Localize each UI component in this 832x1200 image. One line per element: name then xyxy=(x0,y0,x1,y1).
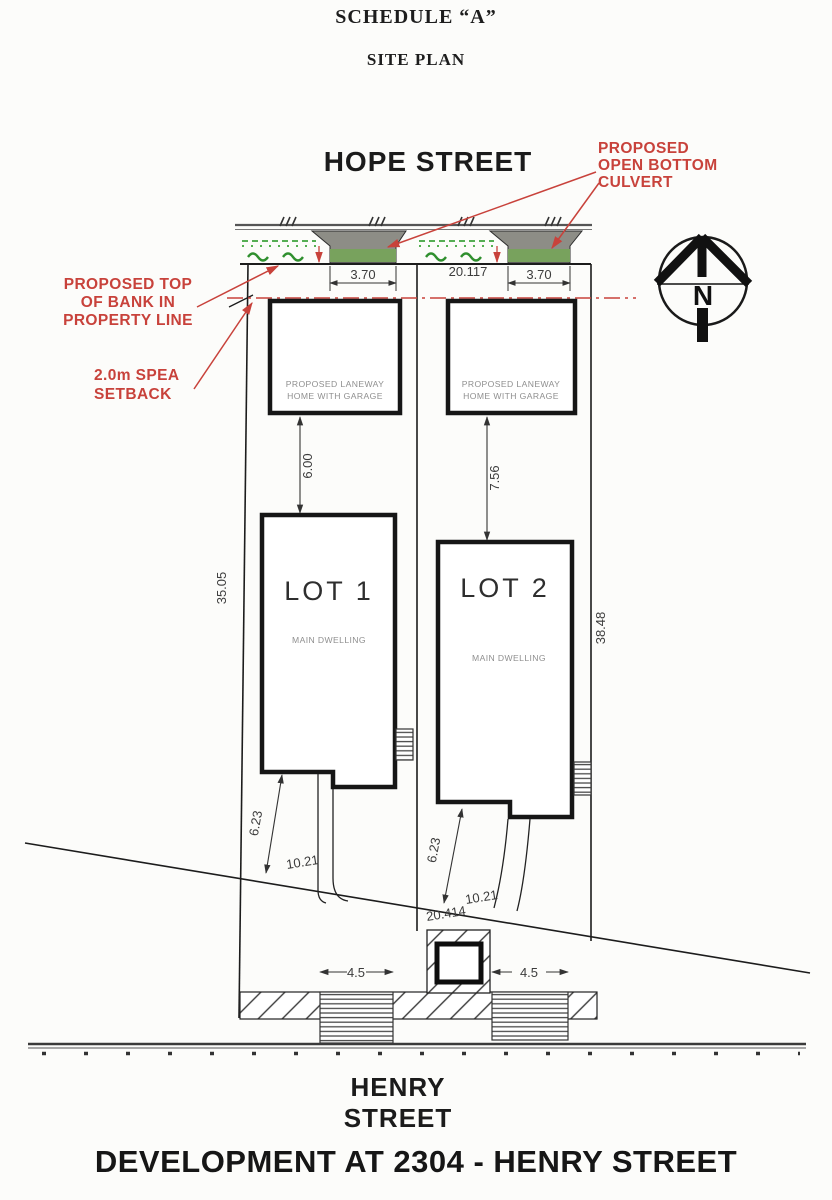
compass-tail xyxy=(697,308,708,342)
rear-dim2-lot2-value: 10.21 xyxy=(464,887,498,907)
site-plan-page: SCHEDULE “A” SITE PLAN HOPE STREET PROPO… xyxy=(0,0,832,1200)
walkway-lot2 xyxy=(494,819,530,911)
driveway-dim-lot1-value: 4.5 xyxy=(347,965,365,980)
rear-dim-line-lot2 xyxy=(444,809,462,903)
laneway1-label-line2: HOME WITH GARAGE xyxy=(287,391,383,401)
rear-total-dim-value: 20.414 xyxy=(425,903,467,924)
main-dwelling-lot1 xyxy=(262,515,395,787)
north-letter: N xyxy=(693,280,713,311)
culvert2-width-dim: 3.70 xyxy=(526,267,551,282)
plan-drawing: 3.70 3.70 20.117 2.00 2.00 PROPOSED LANE… xyxy=(0,0,832,1200)
driveway-lot2 xyxy=(492,992,568,1040)
utility-structure-inner xyxy=(437,944,481,982)
culvert-apron-lot1 xyxy=(312,231,406,263)
laneway1-label-line1: PROPOSED LANEWAY xyxy=(286,379,385,389)
side-dim-lot1: 35.05 xyxy=(214,572,229,605)
rear-dim-lot1-value: 6.23 xyxy=(246,809,265,837)
stairs-lot2 xyxy=(574,762,591,795)
north-arrow-compass: N xyxy=(657,237,749,342)
driveway-lot1 xyxy=(320,992,393,1043)
hope-street-edge xyxy=(235,217,592,230)
gap-dim-lot2-value: 7.56 xyxy=(487,465,502,490)
laneway2-label-line1: PROPOSED LANEWAY xyxy=(462,379,561,389)
lot1-dwelling-label: MAIN DWELLING xyxy=(292,635,366,645)
henry-street-edge xyxy=(28,1044,806,1054)
side-dim-lot2: 38.48 xyxy=(593,612,608,645)
rear-dim2-lot1-value: 10.21 xyxy=(285,852,319,872)
rear-dim-lot2-value: 6.23 xyxy=(424,836,444,864)
frontage-total-dim: 20.117 xyxy=(449,264,488,279)
driveway-dim-lot2-value: 4.5 xyxy=(520,965,538,980)
culvert1-width-dim: 3.70 xyxy=(350,267,375,282)
gap-dim-lot1-value: 6.00 xyxy=(300,453,315,478)
lot1-label: LOT 1 xyxy=(284,576,374,606)
development-title: DEVELOPMENT AT 2304 - HENRY STREET xyxy=(0,1144,832,1180)
walkway-lot1 xyxy=(318,774,348,903)
laneway2-label-line2: HOME WITH GARAGE xyxy=(463,391,559,401)
rear-dim-line-lot1 xyxy=(266,775,282,873)
lot2-dwelling-label: MAIN DWELLING xyxy=(472,653,546,663)
culvert-apron-lot2 xyxy=(490,231,582,263)
stairs-lot1 xyxy=(396,729,413,760)
lot2-label: LOT 2 xyxy=(460,573,550,603)
henry-street-label: HENRY STREET xyxy=(298,1072,498,1134)
